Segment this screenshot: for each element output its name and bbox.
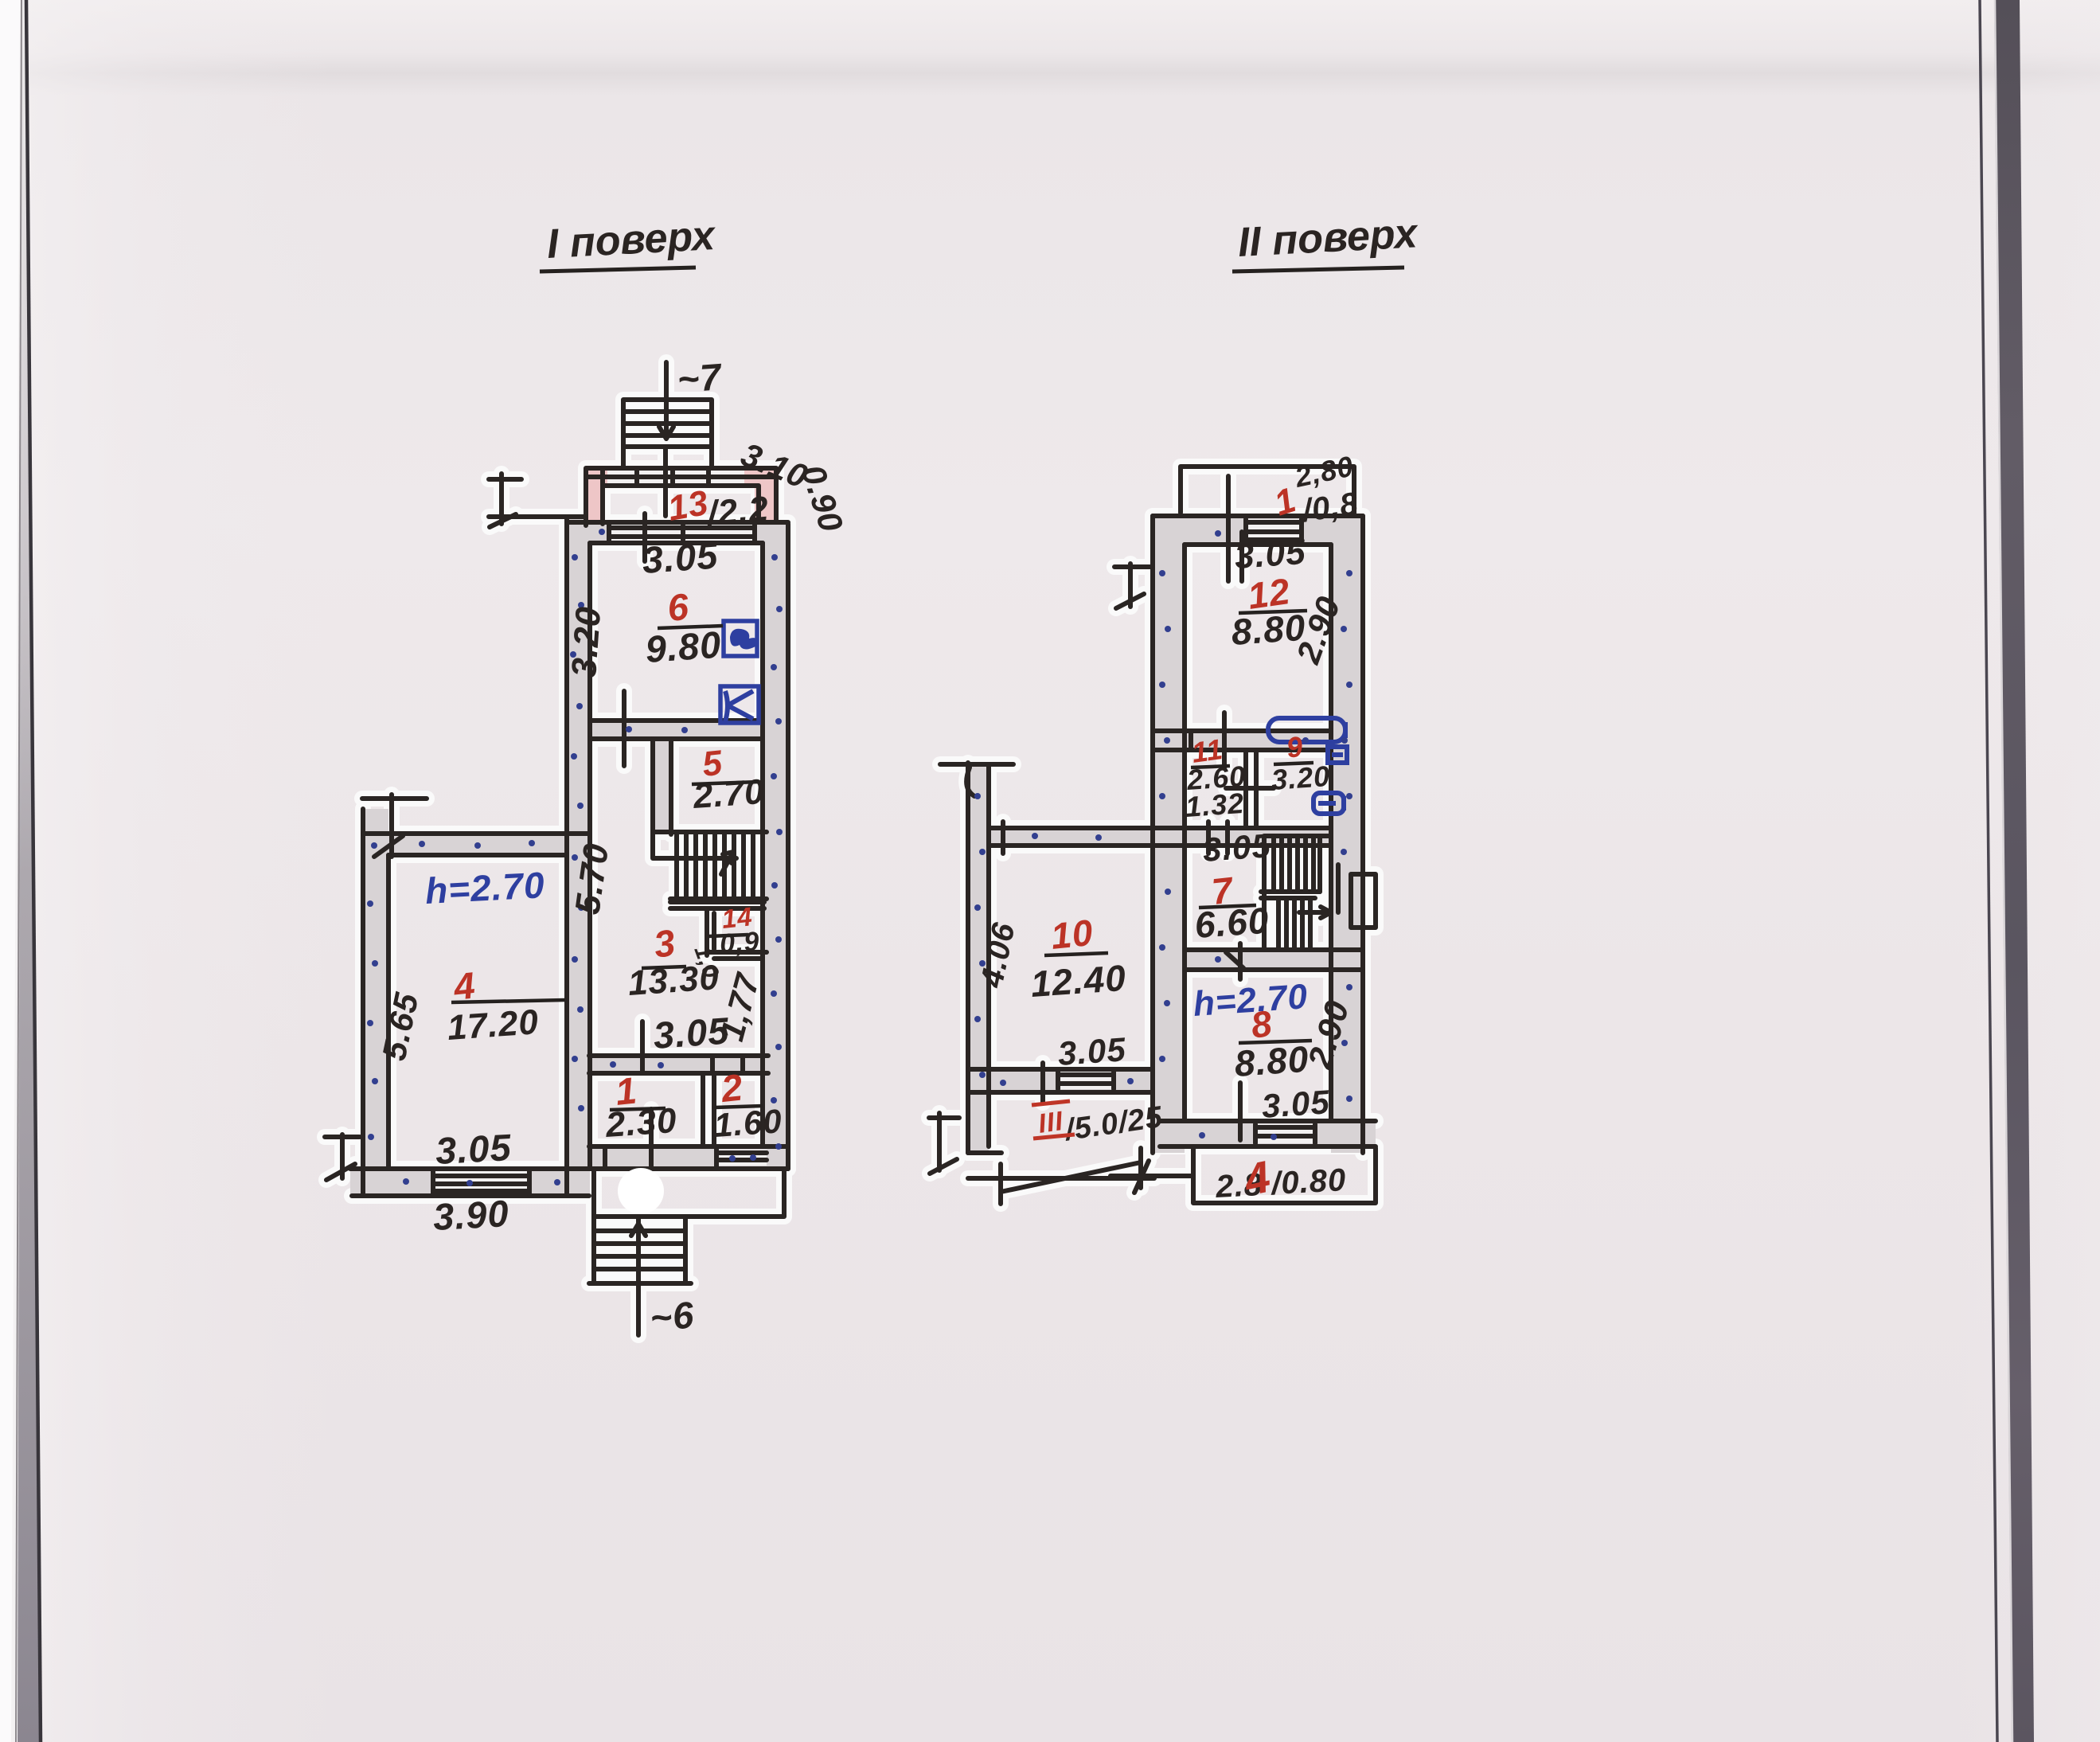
svg-text:3.20: 3.20 (564, 605, 608, 679)
svg-text:3.05: 3.05 (641, 533, 720, 581)
svg-text:ІІ поверх: ІІ поверх (1237, 210, 1420, 266)
svg-text:/2.2: /2.2 (705, 489, 771, 533)
svg-text:3.05: 3.05 (435, 1126, 513, 1172)
svg-text:3.05: 3.05 (1260, 1083, 1331, 1125)
svg-text:3.05: 3.05 (652, 1009, 731, 1057)
svg-text:3.05: 3.05 (1056, 1030, 1127, 1072)
svg-text:0,9: 0,9 (719, 927, 761, 959)
svg-text:~7: ~7 (676, 355, 724, 400)
svg-text:/0.80: /0.80 (1269, 1162, 1347, 1201)
svg-text:13.30: 13.30 (626, 958, 720, 1003)
svg-text:3.90: 3.90 (432, 1192, 510, 1238)
svg-text:1.32: 1.32 (1185, 787, 1246, 823)
svg-text:2: 2 (719, 1065, 746, 1110)
svg-text:10: 10 (1049, 912, 1095, 957)
svg-text:17.20: 17.20 (446, 1002, 540, 1048)
svg-text:13: 13 (665, 483, 712, 529)
svg-text:І поверх: І поверх (546, 213, 718, 268)
svg-text:3.05: 3.05 (1233, 533, 1307, 576)
svg-text:6: 6 (666, 585, 691, 629)
svg-text:3.05: 3.05 (1201, 826, 1272, 869)
svg-text:h=2.70: h=2.70 (424, 864, 546, 912)
svg-text:2.70: 2.70 (691, 772, 766, 816)
svg-text:12.40: 12.40 (1029, 957, 1127, 1005)
svg-text:9.80: 9.80 (644, 623, 723, 670)
svg-text:8.80: 8.80 (1233, 1038, 1310, 1084)
svg-text:~6: ~6 (648, 1293, 696, 1339)
